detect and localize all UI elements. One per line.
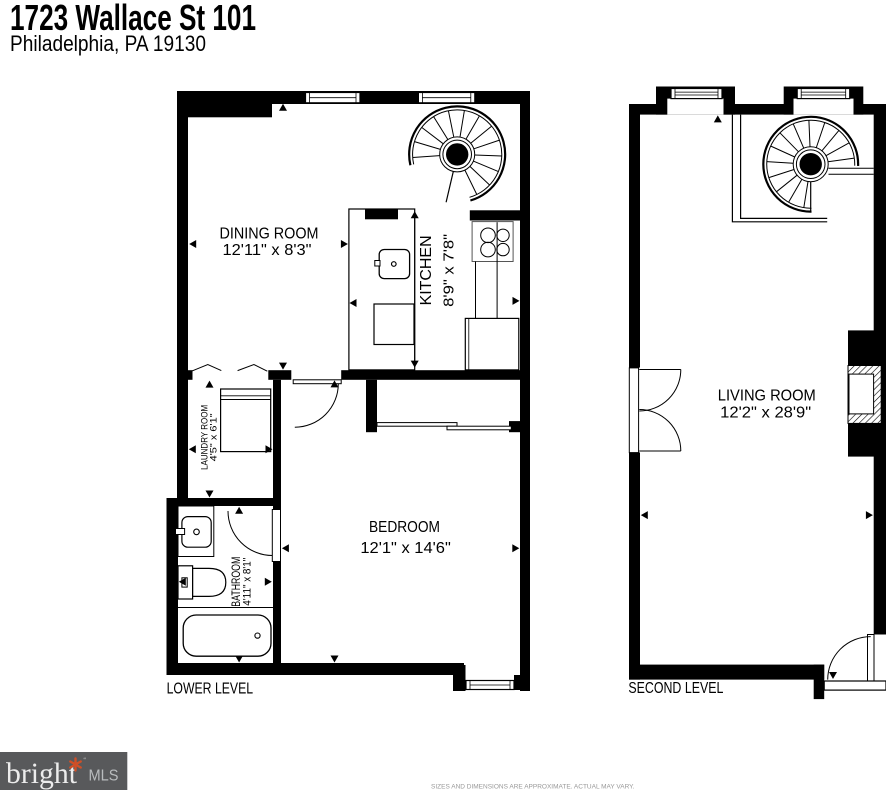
svg-text:BEDROOM: BEDROOM [369,519,440,536]
svg-text:MLS: MLS [89,768,119,785]
svg-text:4'5" x 6'1": 4'5" x 6'1" [209,413,220,461]
svg-text:8'9" x 7'8": 8'9" x 7'8" [441,234,458,307]
svg-text:12'1" x 14'6": 12'1" x 14'6" [360,540,451,557]
svg-text:4'11" x 8'1": 4'11" x 8'1" [242,558,254,606]
svg-text:SIZES AND DIMENSIONS ARE APPRO: SIZES AND DIMENSIONS ARE APPROXIMATE. AC… [431,784,635,790]
svg-text:LOWER LEVEL: LOWER LEVEL [167,680,254,697]
svg-text:SECOND LEVEL: SECOND LEVEL [628,680,723,697]
svg-text:DINING ROOM: DINING ROOM [220,226,319,243]
svg-text:LIVING ROOM: LIVING ROOM [718,387,816,404]
svg-text:KITCHEN: KITCHEN [418,235,435,305]
svg-text:bright: bright [6,757,78,790]
svg-text:Philadelphia, PA 19130: Philadelphia, PA 19130 [10,31,206,56]
svg-text:12'11" x 8'3": 12'11" x 8'3" [223,242,312,259]
svg-text:12'2" x 28'9": 12'2" x 28'9" [720,405,811,422]
